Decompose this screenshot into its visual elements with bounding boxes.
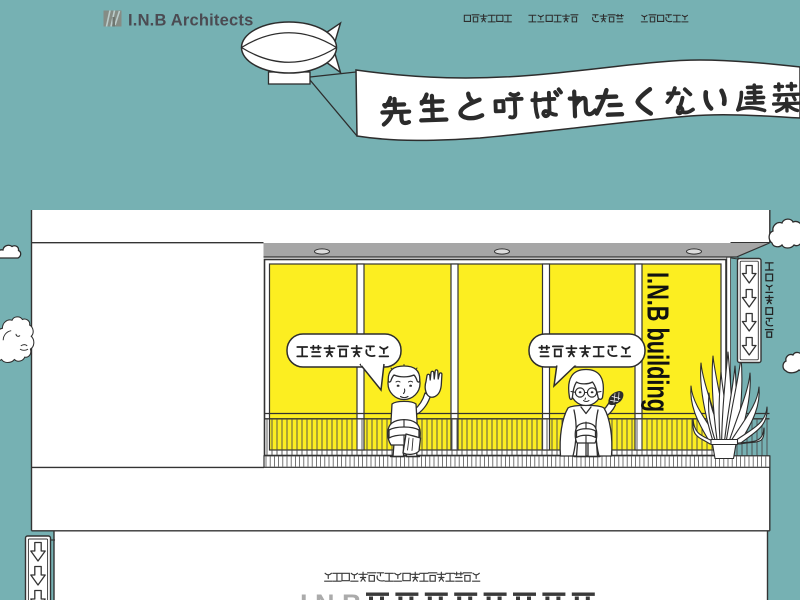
svg-text:I.N.B Architects: I.N.B Architects [128, 12, 253, 30]
svg-text:I.N.B: I.N.B [300, 589, 362, 600]
svg-text:I.N.B building: I.N.B building [641, 272, 676, 412]
